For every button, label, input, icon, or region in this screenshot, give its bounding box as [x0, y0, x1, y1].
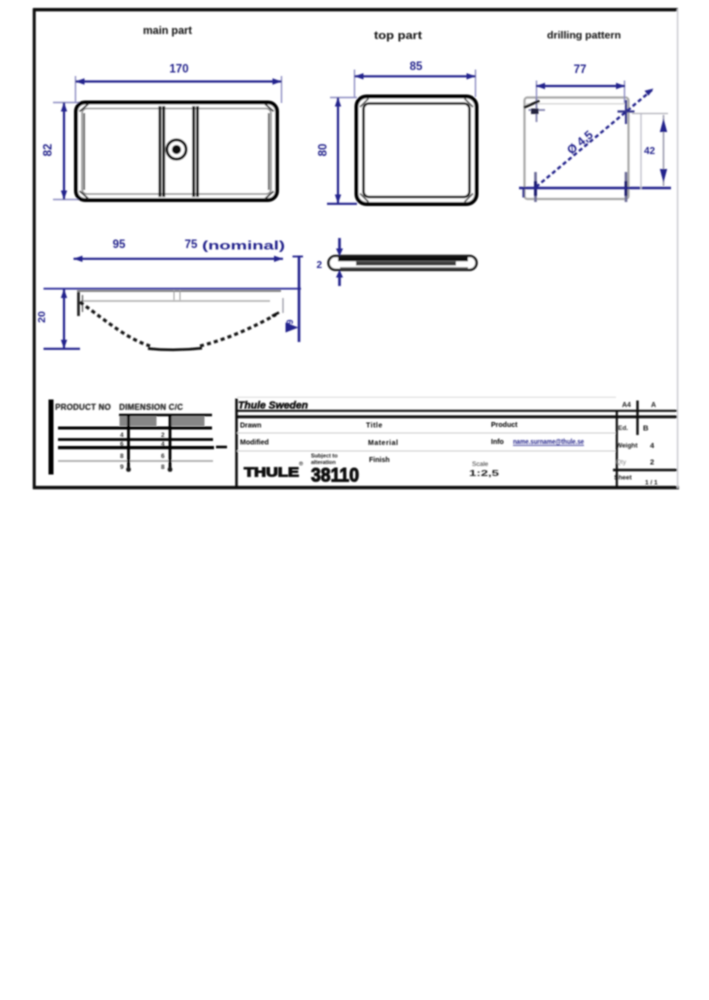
svg-text:1:2,5: 1:2,5 — [469, 469, 500, 478]
svg-text:8: 8 — [161, 464, 165, 471]
svg-text:THULE: THULE — [244, 465, 299, 480]
svg-text:85: 85 — [410, 61, 423, 73]
svg-text:A4: A4 — [622, 402, 631, 409]
svg-text:PRODUCT NO: PRODUCT NO — [56, 403, 112, 412]
svg-text:75: 75 — [185, 239, 198, 251]
svg-text:DIMENSION C/C: DIMENSION C/C — [120, 403, 184, 412]
svg-text:80: 80 — [318, 144, 330, 157]
svg-text:95: 95 — [113, 239, 126, 251]
svg-text:Scale: Scale — [472, 461, 489, 468]
svg-text:A: A — [651, 402, 656, 409]
svg-text:42: 42 — [644, 146, 656, 157]
svg-text:4: 4 — [120, 432, 124, 439]
svg-text:Ed.: Ed. — [618, 425, 628, 432]
svg-text:®: ® — [299, 461, 303, 468]
svg-text:Qty: Qty — [616, 459, 627, 466]
svg-text:Title: Title — [366, 423, 383, 430]
svg-text:Modified: Modified — [240, 440, 269, 447]
svg-text:6: 6 — [120, 441, 124, 448]
svg-text:Weight: Weight — [616, 443, 638, 450]
svg-text:6: 6 — [161, 453, 165, 460]
svg-text:Subject to: Subject to — [311, 454, 338, 460]
svg-text:9: 9 — [285, 319, 295, 324]
svg-text:Finish: Finish — [369, 457, 390, 464]
svg-text:1 / 1: 1 / 1 — [645, 480, 658, 487]
svg-text:2: 2 — [317, 260, 323, 271]
svg-text:2: 2 — [161, 432, 165, 439]
svg-text:Info: Info — [491, 439, 504, 446]
svg-text:170: 170 — [169, 64, 188, 76]
svg-text:B: B — [643, 424, 649, 433]
svg-text:Material: Material — [368, 440, 398, 447]
svg-text:2: 2 — [650, 458, 654, 467]
svg-text:4: 4 — [161, 441, 165, 448]
svg-text:top part: top part — [374, 30, 422, 42]
svg-text:9: 9 — [120, 464, 124, 471]
svg-text:38110: 38110 — [311, 466, 359, 487]
svg-text:Drawn: Drawn — [240, 423, 261, 430]
svg-text:drilling pattern: drilling pattern — [547, 30, 621, 42]
svg-text:8: 8 — [120, 453, 124, 460]
svg-text:20: 20 — [36, 311, 48, 323]
svg-text:82: 82 — [43, 144, 55, 157]
svg-text:main part: main part — [143, 25, 192, 37]
svg-text:name.surname@thule.se: name.surname@thule.se — [513, 437, 584, 446]
svg-text:77: 77 — [574, 64, 587, 76]
svg-text:Product: Product — [491, 422, 518, 429]
svg-text:Sheet: Sheet — [614, 475, 633, 482]
svg-text:(nominal): (nominal) — [202, 239, 285, 253]
